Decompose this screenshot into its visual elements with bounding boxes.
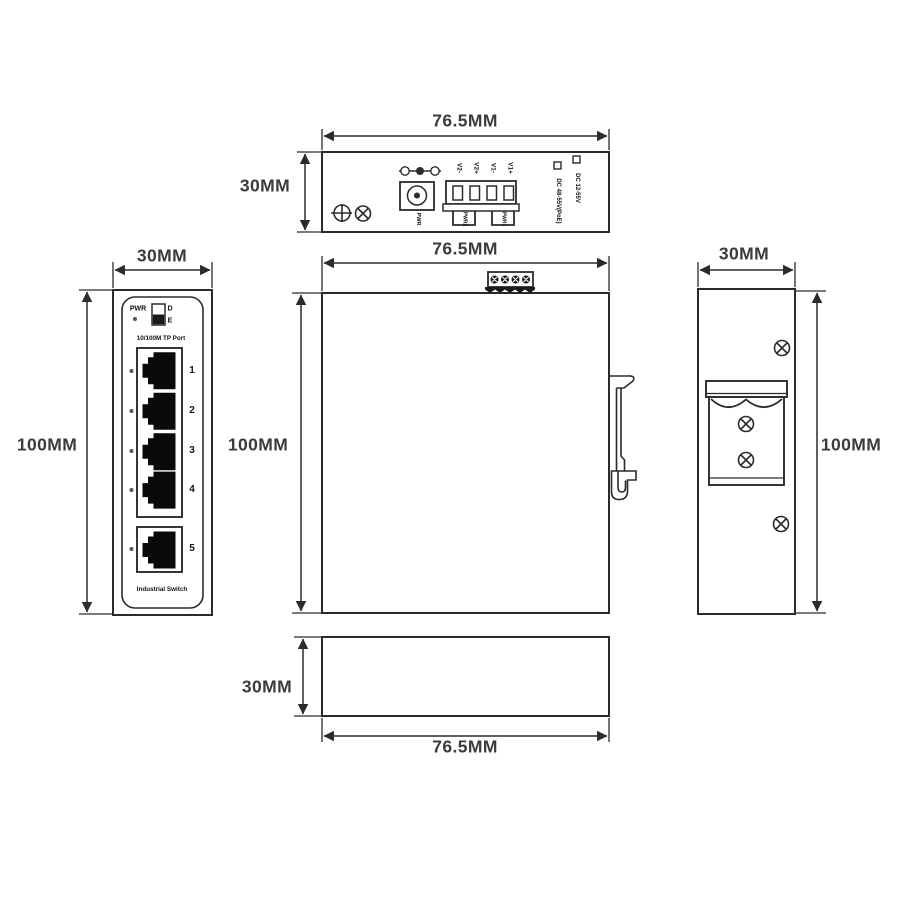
power-option-dc12: DC 12-55V: [574, 173, 580, 203]
polarity-icon: [399, 167, 441, 175]
din-rail-clip-icon: [609, 376, 636, 500]
din-bracket-body: [709, 397, 784, 485]
port-number-2: 2: [189, 406, 195, 416]
port-1-led-icon: [130, 369, 134, 373]
front-footer-label: Industrial Switch: [137, 587, 187, 593]
port-number-3: 3: [189, 446, 195, 456]
side-view: [322, 272, 636, 613]
port-2-led-icon: [130, 409, 134, 413]
right-side-view: [698, 289, 795, 614]
port-number-1: 1: [189, 366, 195, 376]
port-4-led-icon: [130, 488, 134, 492]
front-pwr-label: PWR: [130, 306, 146, 313]
dim-label-front-width: 30MM: [137, 247, 187, 265]
dim-label-side-height: 100MM: [228, 436, 288, 454]
dim-label-front-height: 100MM: [17, 436, 77, 454]
drawing-linework: [0, 0, 900, 900]
pin-label-v2plus: V2+: [472, 162, 479, 174]
dc-jack-icon: [400, 182, 434, 210]
checkbox-dc12-icon: [573, 156, 580, 163]
dip-label-e: E: [168, 318, 173, 325]
dim-label-right-height: 100MM: [821, 436, 881, 454]
jack-label: PWR: [414, 213, 420, 226]
din-bracket-bar: [706, 381, 787, 397]
clamp-label-pwr1: PWR1: [501, 212, 506, 226]
power-option-dc48: DC 48-55V(PoE): [555, 178, 561, 223]
dim-label-top-height: 30MM: [240, 177, 290, 195]
checkbox-dc48-icon: [554, 162, 561, 169]
clamp-label-pwr2: PWR2: [462, 212, 467, 226]
port-3-led-icon: [130, 449, 134, 453]
dim-label-top-width: 76.5MM: [432, 112, 498, 130]
dip-switch-icon: [152, 304, 165, 325]
ports-title: 10/100M TP Port: [137, 336, 186, 342]
dim-label-right-width: 30MM: [719, 245, 769, 263]
pin-label-v1plus: V1+: [506, 162, 513, 174]
bottom-view-outline: [322, 637, 609, 716]
side-view-outline: [322, 293, 609, 613]
terminal-block-top-icon: [485, 272, 535, 293]
dim-label-side-width: 76.5MM: [432, 240, 498, 258]
dimension-drawing: 76.5MM 30MM 30MM 100MM 76.5MM 100MM 30MM…: [0, 0, 900, 900]
port-5-led-icon: [130, 547, 134, 551]
dip-label-d: D: [167, 306, 172, 313]
port-number-5: 5: [189, 544, 195, 554]
power-led-icon: [133, 317, 137, 321]
din-bracket: [706, 381, 787, 485]
pin-label-v2minus: V2-: [455, 163, 462, 173]
pin-label-v1minus: V1-: [489, 163, 496, 173]
port-number-4: 4: [189, 485, 195, 495]
dim-label-bottom-width: 76.5MM: [432, 738, 498, 756]
dim-label-bottom-height: 30MM: [242, 678, 292, 696]
